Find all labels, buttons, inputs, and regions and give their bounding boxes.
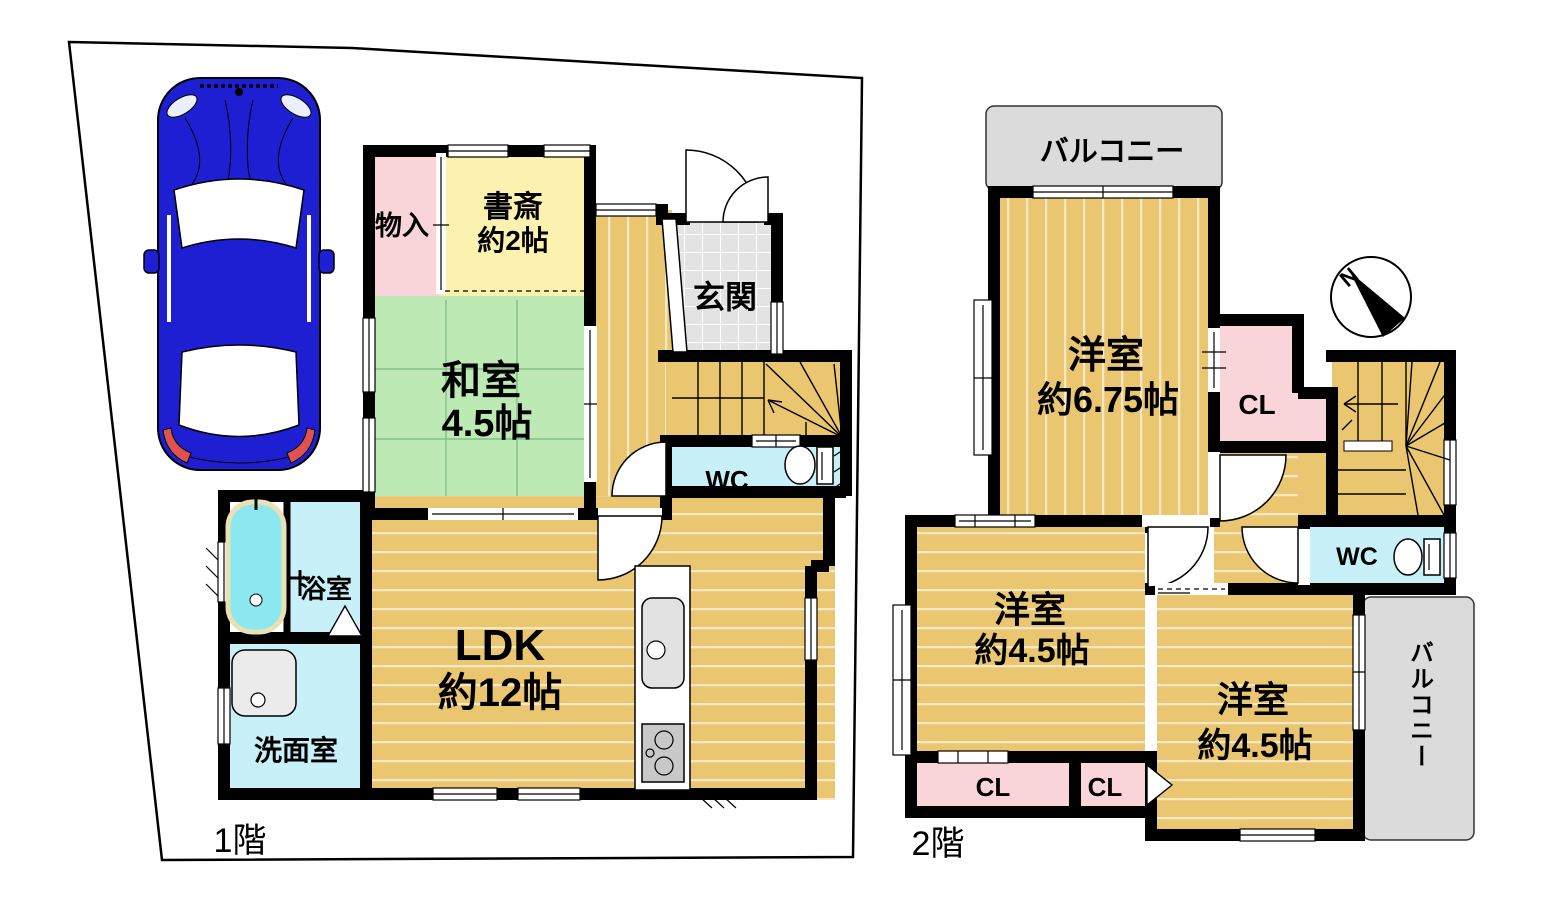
window (1444, 533, 1456, 578)
label-study-size: 約2帖 (477, 224, 549, 256)
label-washroom: 洗面室 (254, 734, 338, 766)
label-floor1: 1階 (214, 822, 267, 860)
window (433, 788, 497, 800)
car-windshield (174, 179, 304, 248)
label-balcony-right: バルコニー (1406, 640, 1433, 770)
window (218, 688, 230, 744)
window (1033, 186, 1173, 198)
toilet-tank (817, 447, 833, 484)
compass: N (1331, 257, 1411, 337)
window (1444, 440, 1456, 505)
kitchen-stove (642, 724, 684, 782)
door-opening (1208, 452, 1220, 518)
window (805, 598, 817, 660)
floor2-fixtures (1394, 539, 1440, 575)
label-closet-upper: CL (1238, 389, 1275, 420)
label-bathroom: 浴室 (300, 574, 352, 604)
bathtub (228, 502, 284, 632)
label-45L-size: 約4.5帖 (974, 632, 1089, 670)
window (518, 788, 580, 800)
car-rear-window (179, 345, 299, 437)
washbasin-drain (251, 693, 265, 707)
door-opening (1142, 515, 1210, 527)
label-ldk-name: LDK (455, 621, 546, 670)
car-emblem (235, 88, 243, 96)
room45L-door (1148, 527, 1208, 587)
label-675-size: 約6.75帖 (1037, 379, 1179, 420)
car-top-view (144, 78, 334, 470)
label-wc1: WC (705, 465, 749, 495)
stairs-opening (752, 435, 800, 447)
bathtub-drain (250, 594, 262, 606)
sliding-door (584, 326, 597, 482)
label-washitsu-size: 4.5帖 (442, 403, 533, 445)
window (363, 318, 375, 392)
label-45R-size: 約4.5帖 (1197, 727, 1312, 765)
window (938, 751, 1008, 763)
kitchen-faucet (647, 641, 665, 659)
label-floor2: 2階 (912, 825, 965, 863)
toilet-tank (1424, 539, 1440, 575)
label-storage: 物入 (375, 211, 429, 241)
window (974, 300, 992, 455)
washbasin (232, 650, 296, 716)
floorplan-page: N 物入 書斎 約2帖 玄関 和室 4.5帖 WC 浴室 洗面室 LDK 約12… (0, 0, 1542, 903)
label-45L-name: 洋室 (994, 589, 1066, 630)
window (1353, 615, 1365, 730)
label-closet-left: CL (976, 772, 1011, 802)
label-balcony-top: バルコニー (1040, 136, 1184, 168)
label-ldk-size: 約12帖 (438, 671, 563, 715)
label-45R-name: 洋室 (1217, 679, 1289, 720)
window (955, 515, 1035, 527)
label-675-name: 洋室 (1068, 334, 1144, 377)
window (363, 418, 375, 492)
sliding-door (1155, 583, 1228, 595)
car-mirror-left (144, 250, 159, 273)
window (1240, 829, 1315, 841)
label-washitsu-name: 和室 (441, 359, 521, 403)
window (893, 605, 911, 755)
toilet-bowl (785, 446, 815, 484)
sliding-door (428, 508, 578, 520)
car-mirror-right (319, 250, 334, 273)
label-entrance: 玄関 (693, 279, 757, 315)
window (771, 302, 783, 354)
closet-upper-fill (1214, 320, 1332, 452)
label-wc2: WC (1336, 543, 1378, 571)
toilet-bowl (1394, 539, 1422, 575)
floorplan-canvas: N 物入 書斎 約2帖 玄関 和室 4.5帖 WC 浴室 洗面室 LDK 約12… (0, 0, 1542, 903)
label-study-name: 書斎 (483, 190, 543, 224)
label-closet-mid: CL (1088, 772, 1123, 802)
door-opening (1298, 529, 1310, 585)
kitchen-sink (642, 598, 684, 688)
window (544, 145, 590, 157)
window (596, 204, 656, 216)
room-bath-fill (286, 496, 366, 638)
window (448, 145, 508, 157)
